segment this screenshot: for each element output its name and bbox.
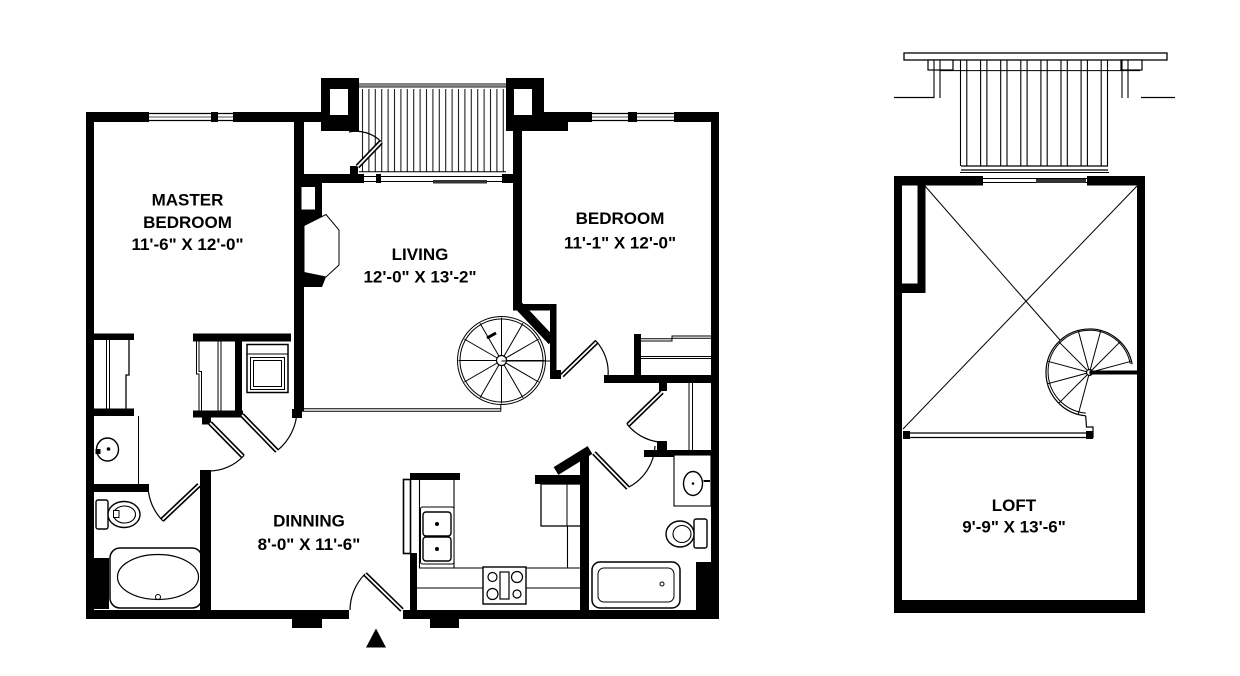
svg-text:BEDROOM: BEDROOM xyxy=(143,213,232,232)
svg-text:9'-9" X 13'-6": 9'-9" X 13'-6" xyxy=(962,518,1066,537)
svg-text:8'-0" X 11'-6": 8'-0" X 11'-6" xyxy=(258,535,361,554)
svg-text:11'-1" X 12'-0": 11'-1" X 12'-0" xyxy=(564,234,676,253)
svg-text:LIVING: LIVING xyxy=(392,245,449,264)
svg-text:LOFT: LOFT xyxy=(992,496,1037,515)
svg-text:BEDROOM: BEDROOM xyxy=(576,209,665,228)
svg-text:11'-6" X 12'-0": 11'-6" X 12'-0" xyxy=(131,235,243,254)
svg-text:MASTER: MASTER xyxy=(152,191,224,210)
svg-text:12'-0" X 13'-2": 12'-0" X 13'-2" xyxy=(363,268,476,287)
svg-text:DINNING: DINNING xyxy=(273,512,345,531)
